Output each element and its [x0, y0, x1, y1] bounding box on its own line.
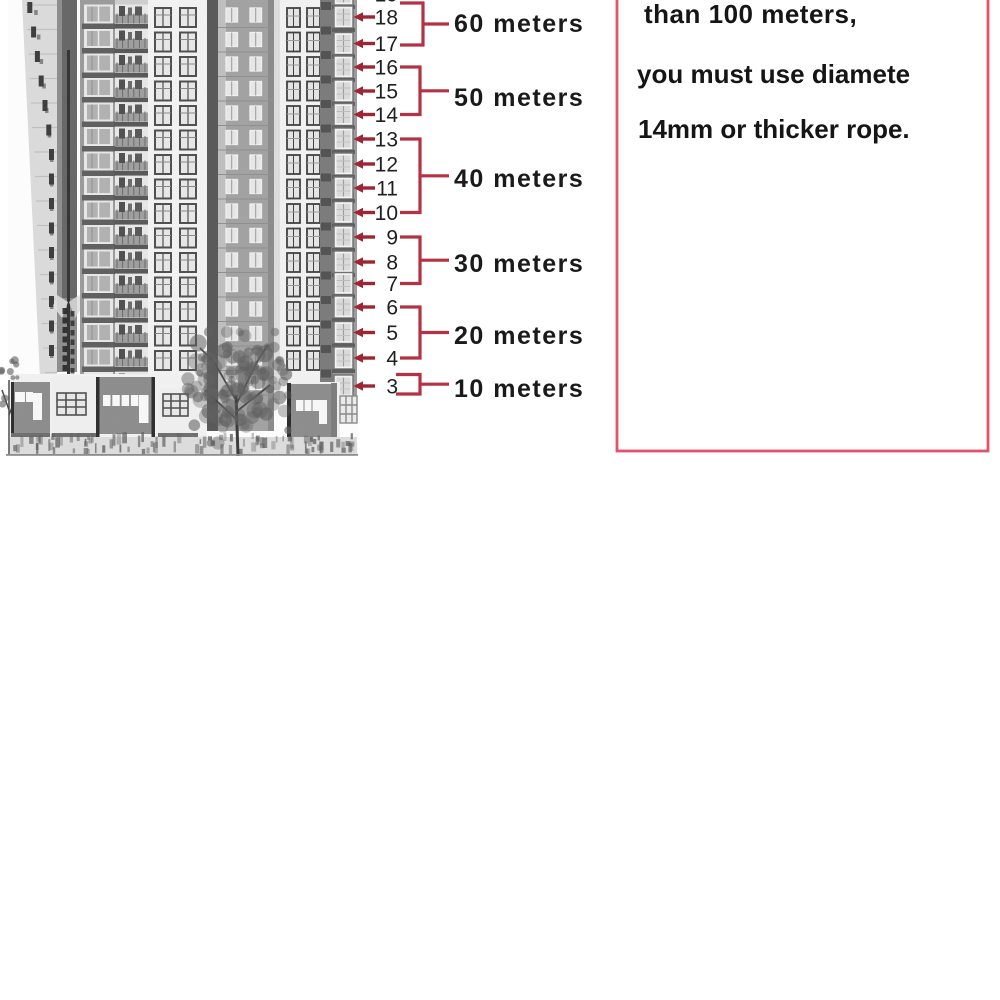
svg-text:20 meters: 20 meters	[454, 322, 584, 350]
svg-text:7: 7	[386, 273, 398, 296]
svg-text:9: 9	[386, 227, 398, 250]
svg-text:11: 11	[376, 178, 398, 201]
svg-text:than 100 meters,: than 100 meters,	[644, 0, 857, 29]
svg-text:60 meters: 60 meters	[454, 10, 584, 38]
svg-text:14mm or thicker rope.: 14mm or thicker rope.	[638, 114, 910, 144]
svg-text:16: 16	[375, 57, 398, 80]
svg-text:15: 15	[375, 81, 398, 104]
svg-text:you must use diamete: you must use diamete	[637, 59, 910, 89]
svg-text:10: 10	[375, 202, 398, 225]
svg-text:17: 17	[375, 33, 398, 56]
svg-text:12: 12	[375, 154, 398, 177]
svg-text:50 meters: 50 meters	[454, 84, 584, 112]
svg-text:5: 5	[386, 322, 398, 345]
svg-text:14: 14	[375, 104, 399, 127]
svg-text:4: 4	[386, 348, 398, 371]
svg-text:10 meters: 10 meters	[454, 375, 584, 403]
svg-text:30 meters: 30 meters	[454, 250, 584, 278]
svg-text:18: 18	[375, 7, 398, 30]
svg-text:6: 6	[386, 297, 398, 320]
svg-text:8: 8	[386, 252, 398, 275]
svg-text:13: 13	[375, 129, 398, 152]
svg-text:40 meters: 40 meters	[454, 165, 584, 193]
